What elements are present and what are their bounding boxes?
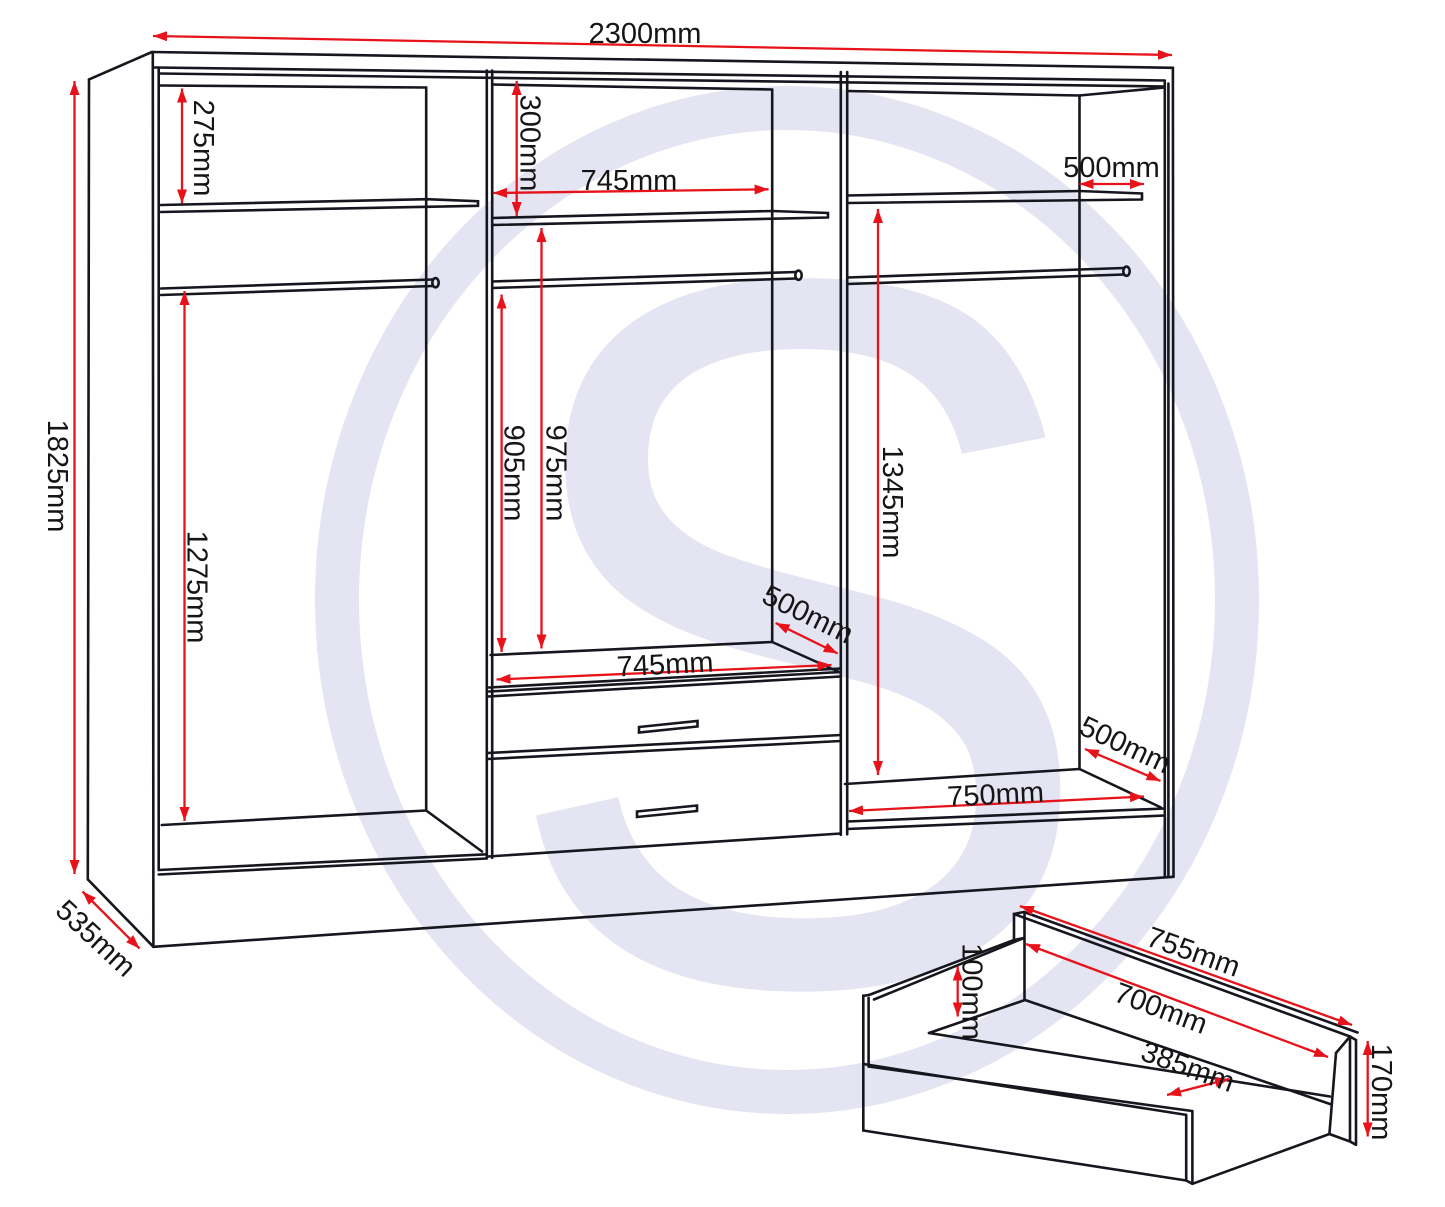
svg-text:2300mm: 2300mm	[589, 18, 702, 50]
svg-text:750mm: 750mm	[946, 776, 1044, 813]
svg-text:275mm: 275mm	[187, 100, 219, 197]
svg-text:905mm: 905mm	[498, 425, 530, 522]
svg-text:1275mm: 1275mm	[181, 531, 213, 644]
svg-text:975mm: 975mm	[540, 425, 572, 522]
svg-text:700mm: 700mm	[1110, 977, 1212, 1041]
svg-text:170mm: 170mm	[1365, 1044, 1397, 1141]
svg-text:1825mm: 1825mm	[41, 420, 73, 533]
svg-text:745mm: 745mm	[616, 646, 714, 683]
svg-text:300mm: 300mm	[514, 95, 546, 192]
svg-text:535mm: 535mm	[49, 894, 142, 983]
svg-text:S: S	[495, 69, 1102, 1196]
svg-text:500mm: 500mm	[1063, 152, 1160, 184]
svg-text:1345mm: 1345mm	[876, 446, 908, 559]
svg-text:100mm: 100mm	[956, 943, 988, 1040]
svg-text:745mm: 745mm	[581, 165, 678, 197]
